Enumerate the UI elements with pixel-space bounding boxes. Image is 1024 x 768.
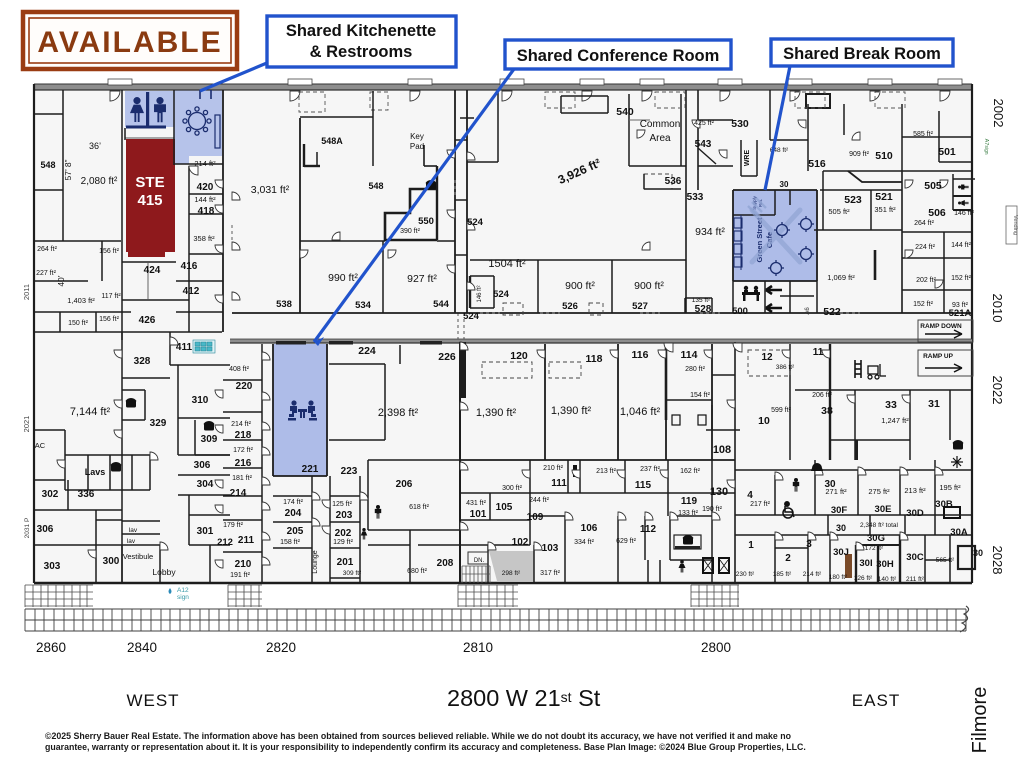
svg-text:412: 412: [183, 286, 200, 297]
svg-text:214 ft²: 214 ft²: [194, 159, 216, 168]
svg-text:390 ft²: 390 ft²: [400, 228, 421, 235]
svg-text:210 ft²: 210 ft²: [543, 465, 564, 472]
svg-text:158 ft²: 158 ft²: [280, 539, 301, 546]
svg-text:244 ft²: 244 ft²: [529, 497, 550, 504]
svg-text:144 ft²: 144 ft²: [951, 242, 972, 249]
svg-text:227 ft²: 227 ft²: [36, 270, 57, 277]
svg-text:RAMP UP: RAMP UP: [923, 353, 954, 360]
svg-text:543: 543: [695, 139, 712, 150]
svg-text:126 ft²: 126 ft²: [854, 575, 873, 582]
svg-text:351 ft²: 351 ft²: [874, 205, 896, 214]
svg-text:521: 521: [875, 191, 893, 203]
svg-text:934 ft²: 934 ft²: [695, 226, 725, 238]
svg-text:408 ft²: 408 ft²: [229, 366, 250, 373]
svg-text:329: 329: [150, 418, 167, 429]
svg-text:298 ft²: 298 ft²: [502, 570, 521, 577]
svg-text:202: 202: [335, 528, 352, 539]
svg-text:306: 306: [37, 524, 54, 535]
svg-text:230 ft²: 230 ft²: [736, 571, 755, 578]
svg-text:202 ft²: 202 ft²: [916, 277, 937, 284]
svg-text:181 ft²: 181 ft²: [232, 475, 253, 482]
svg-text:174 ft²: 174 ft²: [283, 499, 304, 506]
svg-text:93 ft²: 93 ft²: [952, 302, 969, 309]
svg-text:415: 415: [137, 192, 162, 209]
svg-text:300: 300: [103, 556, 120, 567]
svg-text:506: 506: [928, 207, 946, 219]
svg-text:191 ft²: 191 ft²: [230, 572, 251, 579]
svg-text:112: 112: [640, 524, 657, 535]
svg-text:Lavs: Lavs: [85, 467, 106, 477]
svg-text:172 ft²: 172 ft²: [233, 447, 254, 454]
svg-text:216: 216: [235, 458, 252, 469]
svg-text:585 ft²: 585 ft²: [913, 131, 934, 138]
svg-text:909 ft²: 909 ft²: [849, 151, 870, 158]
svg-text:40’: 40’: [56, 275, 66, 286]
svg-text:306: 306: [194, 460, 211, 471]
svg-text:Vestibule: Vestibule: [123, 552, 153, 561]
svg-text:220: 220: [236, 381, 253, 392]
svg-text:544: 544: [433, 299, 450, 310]
svg-text:524: 524: [493, 289, 510, 300]
svg-text:505 ft²: 505 ft²: [828, 207, 850, 216]
svg-text:416: 416: [181, 261, 198, 272]
svg-text:105: 105: [496, 502, 513, 513]
svg-text:106: 106: [581, 523, 598, 534]
svg-text:411: 411: [176, 342, 193, 353]
svg-text:500: 500: [732, 306, 748, 317]
svg-text:540: 540: [616, 106, 634, 118]
svg-text:3,031 ft²: 3,031 ft²: [251, 184, 290, 196]
svg-text:505: 505: [924, 180, 942, 192]
svg-text:146 ft²: 146 ft²: [477, 285, 483, 302]
svg-text:2011: 2011: [22, 284, 31, 300]
svg-text:STE: STE: [135, 174, 164, 191]
svg-text:179 ft²: 179 ft²: [223, 522, 244, 529]
svg-text:103: 103: [542, 543, 559, 554]
svg-text:237 ft²: 237 ft²: [640, 466, 661, 473]
svg-text:599 ft²: 599 ft²: [771, 407, 792, 414]
svg-text:190 ft²: 190 ft²: [702, 506, 723, 513]
svg-text:526: 526: [562, 301, 578, 312]
svg-text:133 ft²: 133 ft²: [678, 510, 699, 517]
svg-text:629 ft²: 629 ft²: [616, 538, 637, 545]
svg-text:211: 211: [238, 535, 255, 546]
svg-text:111: 111: [551, 478, 567, 489]
svg-text:185 ft²: 185 ft²: [773, 571, 792, 578]
svg-text:264 ft²: 264 ft²: [914, 220, 935, 227]
svg-text:226: 226: [438, 351, 456, 363]
svg-text:205: 205: [287, 526, 304, 537]
svg-text:2022: 2022: [990, 376, 1005, 405]
svg-text:130: 130: [710, 486, 728, 498]
svg-text:213 ft²: 213 ft²: [596, 468, 617, 475]
svg-text:30: 30: [836, 523, 846, 533]
svg-text:Lounge: Lounge: [312, 550, 319, 573]
svg-text:Area: Area: [649, 133, 671, 144]
svg-text:1504 ft²: 1504 ft²: [488, 258, 526, 270]
svg-text:210: 210: [235, 559, 252, 570]
svg-text:533: 533: [687, 192, 704, 203]
svg-text:534: 534: [355, 300, 372, 311]
svg-text:1,390 ft²: 1,390 ft²: [551, 405, 592, 417]
svg-text:523: 523: [844, 194, 862, 206]
svg-text:302: 302: [42, 489, 59, 500]
svg-text:2002: 2002: [991, 99, 1006, 128]
svg-text:2021: 2021: [22, 416, 31, 433]
svg-text:AVAILABLE: AVAILABLE: [37, 26, 222, 59]
svg-text:sign: sign: [177, 594, 189, 601]
svg-text:lav: lav: [127, 538, 136, 545]
svg-text:900 ft²: 900 ft²: [634, 280, 664, 292]
svg-text:195 ft²: 195 ft²: [939, 483, 961, 492]
svg-text:101: 101: [470, 509, 487, 520]
svg-text:Lobby: Lobby: [152, 567, 176, 577]
svg-text:117 ft²: 117 ft²: [101, 293, 121, 300]
svg-text:425 ft²: 425 ft²: [694, 120, 715, 127]
svg-text:30: 30: [973, 548, 983, 558]
svg-text:1: 1: [748, 540, 754, 551]
svg-text:guarantee, warranty or represe: guarantee, warranty or representation ab…: [45, 742, 806, 752]
svg-text:927 ft²: 927 ft²: [407, 273, 437, 285]
svg-text:31: 31: [928, 398, 940, 410]
svg-text:2,348 ft² total: 2,348 ft² total: [860, 522, 898, 529]
svg-text:120: 120: [510, 350, 528, 362]
svg-text:140 ft²: 140 ft²: [878, 576, 897, 583]
svg-text:214: 214: [230, 488, 247, 499]
svg-text:527: 527: [632, 301, 648, 312]
svg-text:114: 114: [681, 349, 698, 361]
svg-text:618 ft²: 618 ft²: [409, 504, 430, 511]
svg-text:11: 11: [813, 347, 824, 358]
svg-text:208: 208: [437, 558, 454, 569]
svg-text:516: 516: [808, 158, 826, 170]
svg-text:510: 510: [875, 150, 893, 162]
svg-text:33: 33: [885, 399, 897, 411]
svg-text:2840: 2840: [127, 640, 157, 655]
svg-text:548A: 548A: [321, 136, 343, 146]
svg-text:524: 524: [467, 217, 484, 228]
svg-text:358 ft²: 358 ft²: [193, 234, 215, 243]
svg-text:336: 336: [78, 489, 95, 500]
svg-text:424: 424: [144, 265, 161, 276]
svg-text:A6: A6: [805, 307, 811, 315]
svg-text:2800: 2800: [701, 640, 731, 655]
svg-text:522: 522: [823, 306, 841, 318]
svg-text:150 ft²: 150 ft²: [68, 320, 89, 327]
svg-text:224: 224: [358, 345, 376, 357]
svg-text:RAMP DOWN: RAMP DOWN: [920, 323, 962, 330]
svg-text:12: 12: [761, 352, 773, 363]
svg-text:565 ft²: 565 ft²: [936, 557, 955, 564]
svg-text:A7: A7: [983, 139, 989, 146]
svg-text:Common: Common: [640, 119, 681, 130]
svg-text:304: 304: [197, 479, 214, 490]
svg-text:146 ft²: 146 ft²: [954, 210, 975, 217]
svg-text:57’ 8”: 57’ 8”: [63, 159, 73, 180]
svg-text:A12: A12: [177, 587, 189, 594]
svg-text:680 ft²: 680 ft²: [407, 568, 428, 575]
svg-text:524: 524: [463, 311, 480, 322]
svg-text:218: 218: [235, 430, 252, 441]
svg-text:212: 212: [217, 537, 233, 548]
svg-text:30H: 30H: [876, 559, 894, 570]
svg-text:108: 108: [713, 444, 731, 456]
svg-text:WRE: WRE: [744, 150, 751, 167]
svg-text:1,403 ft²: 1,403 ft²: [67, 296, 95, 305]
svg-text:30D: 30D: [906, 508, 924, 519]
svg-text:530: 530: [731, 118, 749, 130]
svg-text:271 ft²: 271 ft²: [825, 487, 847, 496]
svg-text:102: 102: [512, 537, 529, 548]
svg-text:3: 3: [806, 539, 812, 550]
svg-text:214 ft²: 214 ft²: [803, 571, 822, 578]
svg-text:152 ft²: 152 ft²: [951, 275, 972, 282]
svg-text:328: 328: [134, 356, 151, 367]
svg-text:sign: sign: [983, 145, 989, 154]
svg-text:204: 204: [285, 508, 302, 519]
svg-text:217 ft²: 217 ft²: [750, 501, 771, 508]
svg-text:162 ft²: 162 ft²: [680, 468, 701, 475]
svg-text:2800 W 21st St: 2800 W 21st St: [447, 685, 601, 711]
svg-text:152 ft²: 152 ft²: [913, 301, 934, 308]
svg-text:317 ft²: 317 ft²: [540, 570, 561, 577]
svg-text:156 ft²: 156 ft²: [99, 316, 120, 323]
svg-text:2: 2: [785, 553, 791, 564]
svg-text:224 ft²: 224 ft²: [915, 244, 936, 251]
svg-text:2860: 2860: [36, 640, 66, 655]
svg-text:420: 420: [197, 182, 214, 193]
svg-text:418: 418: [198, 206, 215, 217]
svg-text:30: 30: [780, 180, 789, 189]
svg-text:206 ft²: 206 ft²: [812, 392, 833, 399]
svg-text:129 ft²: 129 ft²: [333, 539, 354, 546]
svg-text:548: 548: [368, 181, 383, 191]
svg-text:501: 501: [938, 146, 956, 158]
svg-text:WEST: WEST: [126, 691, 179, 710]
svg-text:214 ft²: 214 ft²: [231, 421, 252, 428]
svg-text:2031 P: 2031 P: [24, 518, 31, 539]
svg-text:118: 118: [586, 353, 603, 365]
svg-text:154 ft²: 154 ft²: [690, 392, 711, 399]
svg-text:125 ft²: 125 ft²: [332, 501, 353, 508]
svg-text:30F: 30F: [831, 505, 848, 516]
svg-text:213 ft²: 213 ft²: [904, 486, 926, 495]
svg-text:521A: 521A: [949, 308, 972, 319]
svg-text:1,247 ft²: 1,247 ft²: [881, 416, 909, 425]
svg-text:115: 115: [635, 480, 652, 491]
svg-text:Shared Conference Room: Shared Conference Room: [517, 47, 720, 65]
svg-text:1,390 ft²: 1,390 ft²: [476, 407, 517, 419]
svg-text:990 ft²: 990 ft²: [328, 272, 358, 284]
svg-text:310: 310: [192, 395, 209, 406]
svg-text:536: 536: [665, 176, 682, 187]
svg-text:201: 201: [337, 557, 354, 568]
svg-text:203: 203: [336, 510, 353, 521]
svg-text:2810: 2810: [463, 640, 493, 655]
svg-text:EAST: EAST: [852, 691, 900, 710]
svg-text:7,144 ft²: 7,144 ft²: [70, 406, 111, 418]
svg-text:211 ft²: 211 ft²: [906, 576, 925, 583]
svg-text:538: 538: [276, 299, 292, 310]
svg-text:426: 426: [139, 315, 156, 326]
svg-text:528: 528: [695, 304, 712, 315]
svg-text:AC: AC: [35, 441, 46, 450]
svg-text:301: 301: [197, 526, 214, 537]
svg-text:309 ft²: 309 ft²: [343, 570, 362, 577]
svg-text:386 ft²: 386 ft²: [776, 364, 795, 371]
svg-text:30B: 30B: [935, 499, 953, 510]
svg-text:144 ft²: 144 ft²: [194, 195, 216, 204]
svg-text:109: 109: [527, 512, 544, 523]
svg-text:36’: 36’: [89, 141, 101, 151]
svg-text:550: 550: [418, 216, 434, 227]
svg-text:1,069 ft²: 1,069 ft²: [827, 273, 855, 282]
svg-text:2820: 2820: [266, 640, 296, 655]
svg-text:303: 303: [44, 561, 61, 572]
svg-text:30C: 30C: [906, 552, 924, 563]
svg-text:119: 119: [681, 496, 698, 507]
svg-text:2,080 ft²: 2,080 ft²: [81, 176, 118, 187]
svg-text:172 ft²: 172 ft²: [865, 545, 884, 552]
svg-text:& Restrooms: & Restrooms: [310, 43, 413, 61]
svg-text:10: 10: [758, 415, 770, 427]
svg-text:221: 221: [302, 464, 319, 475]
svg-text:180 ft²: 180 ft²: [829, 574, 848, 581]
svg-text:2,398 ft²: 2,398 ft²: [378, 407, 419, 419]
svg-text:116: 116: [632, 349, 649, 361]
svg-text:206: 206: [396, 479, 413, 490]
svg-text:548: 548: [40, 160, 55, 170]
svg-text:4: 4: [747, 490, 753, 501]
svg-text:300 ft²: 300 ft²: [502, 485, 523, 492]
svg-text:30J: 30J: [833, 547, 849, 558]
svg-text:280 ft²: 280 ft²: [685, 366, 706, 373]
svg-text:223: 223: [341, 466, 358, 477]
svg-text:156 ft²: 156 ft²: [99, 248, 120, 255]
svg-text:©2025 Sherry Bauer Real Estate: ©2025 Sherry Bauer Real Estate. The info…: [45, 731, 792, 741]
svg-text:900 ft²: 900 ft²: [565, 280, 595, 292]
svg-text:30A: 30A: [950, 527, 968, 538]
svg-text:431 ft²: 431 ft²: [466, 500, 487, 507]
svg-text:2028: 2028: [990, 546, 1005, 575]
svg-text:Shared Break Room: Shared Break Room: [783, 45, 941, 63]
svg-text:lav: lav: [129, 527, 138, 534]
svg-text:30I: 30I: [859, 558, 872, 569]
svg-text:264 ft²: 264 ft²: [37, 246, 58, 253]
svg-text:Vending: Vending: [1012, 215, 1018, 235]
svg-text:334 ft²: 334 ft²: [574, 539, 595, 546]
svg-text:DN.: DN.: [474, 558, 485, 564]
svg-text:Key: Key: [410, 132, 424, 141]
svg-text:Filmore: Filmore: [969, 687, 991, 754]
svg-text:135 ft²: 135 ft²: [692, 297, 711, 304]
svg-text:30G: 30G: [867, 533, 885, 544]
svg-text:275 ft²: 275 ft²: [868, 487, 890, 496]
svg-text:Pad: Pad: [410, 142, 424, 151]
svg-text:2010: 2010: [990, 294, 1005, 323]
svg-text:Shared Kitchenette: Shared Kitchenette: [286, 22, 436, 40]
svg-text:38: 38: [821, 405, 833, 417]
svg-text:1,046 ft²: 1,046 ft²: [620, 406, 661, 418]
svg-text:309: 309: [201, 434, 218, 445]
svg-text:30E: 30E: [875, 504, 892, 515]
